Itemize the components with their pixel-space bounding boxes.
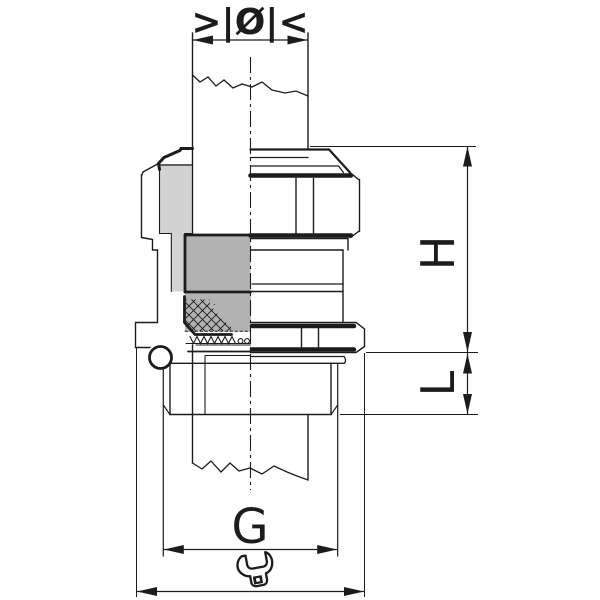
arrow-up: [463, 354, 472, 374]
arrow-down: [463, 332, 472, 352]
dim-label-H: H: [411, 236, 465, 271]
arrow-left: [164, 545, 184, 554]
dim-label-G: G: [231, 499, 268, 555]
arrow-up: [463, 147, 472, 167]
body-band: [251, 239, 349, 323]
cap-skirt-section: [171, 234, 184, 292]
technical-drawing-canvas: >|Ø|< H L G: [0, 0, 600, 600]
o-ring: [150, 347, 172, 369]
arrow-right: [344, 587, 364, 596]
dim-label-L: L: [411, 370, 465, 396]
arrow-left: [137, 587, 157, 596]
section-fills: [160, 164, 252, 332]
dome-cap: [251, 150, 351, 173]
wrench-icon: [236, 551, 276, 589]
clamping-nut: [251, 173, 360, 238]
arrow-right: [317, 545, 337, 554]
cable-gland-drawing: >|Ø|< H L G: [0, 0, 600, 600]
clamping-insert-section: [185, 235, 251, 292]
clamping-range-symbol: >|Ø|<: [191, 2, 308, 43]
cap-wall-section: [160, 164, 192, 234]
